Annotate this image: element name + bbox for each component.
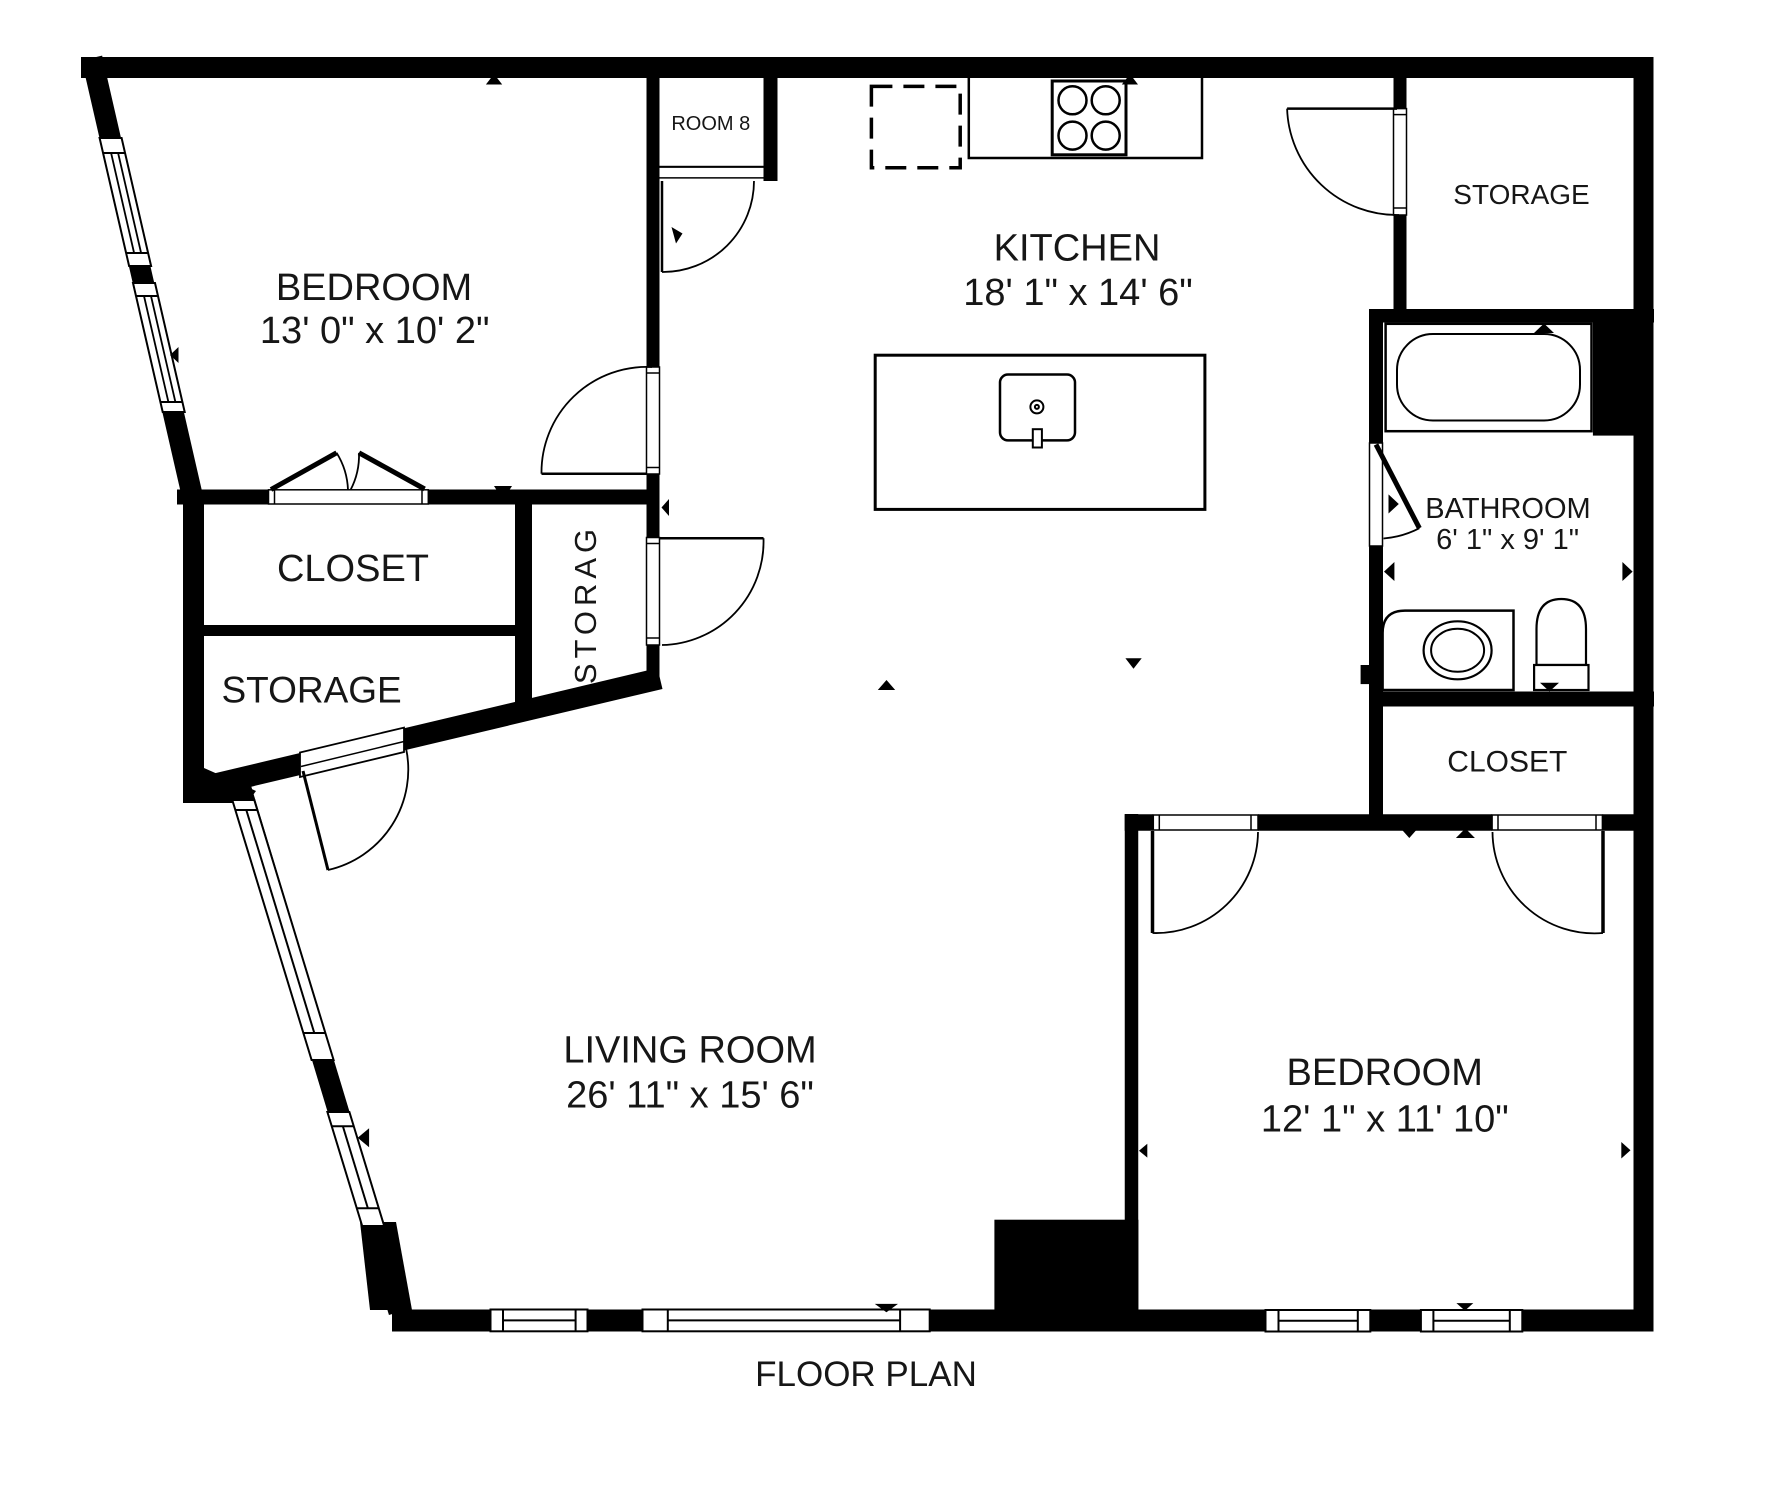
svg-text:CLOSET: CLOSET <box>1447 745 1567 778</box>
svg-text:12' 1" x 11' 10": 12' 1" x 11' 10" <box>1261 1098 1509 1140</box>
svg-text:FLOOR PLAN: FLOOR PLAN <box>755 1355 977 1394</box>
svg-text:STORAGE: STORAGE <box>221 670 401 711</box>
svg-text:26' 11" x 15' 6": 26' 11" x 15' 6" <box>566 1075 814 1117</box>
svg-text:CLOSET: CLOSET <box>277 548 429 590</box>
svg-text:6' 1" x 9' 1": 6' 1" x 9' 1" <box>1436 524 1579 556</box>
svg-text:BATHROOM: BATHROOM <box>1425 493 1590 525</box>
svg-text:BEDROOM: BEDROOM <box>276 267 472 309</box>
svg-text:BEDROOM: BEDROOM <box>1287 1052 1483 1094</box>
svg-text:STORAG: STORAG <box>568 524 603 684</box>
svg-text:ROOM 8: ROOM 8 <box>671 113 750 135</box>
svg-text:KITCHEN: KITCHEN <box>994 228 1161 270</box>
svg-text:18' 1" x 14' 6": 18' 1" x 14' 6" <box>963 272 1193 314</box>
svg-text:13' 0" x 10' 2": 13' 0" x 10' 2" <box>260 310 490 352</box>
svg-text:LIVING ROOM: LIVING ROOM <box>563 1029 816 1071</box>
svg-text:STORAGE: STORAGE <box>1453 179 1589 210</box>
